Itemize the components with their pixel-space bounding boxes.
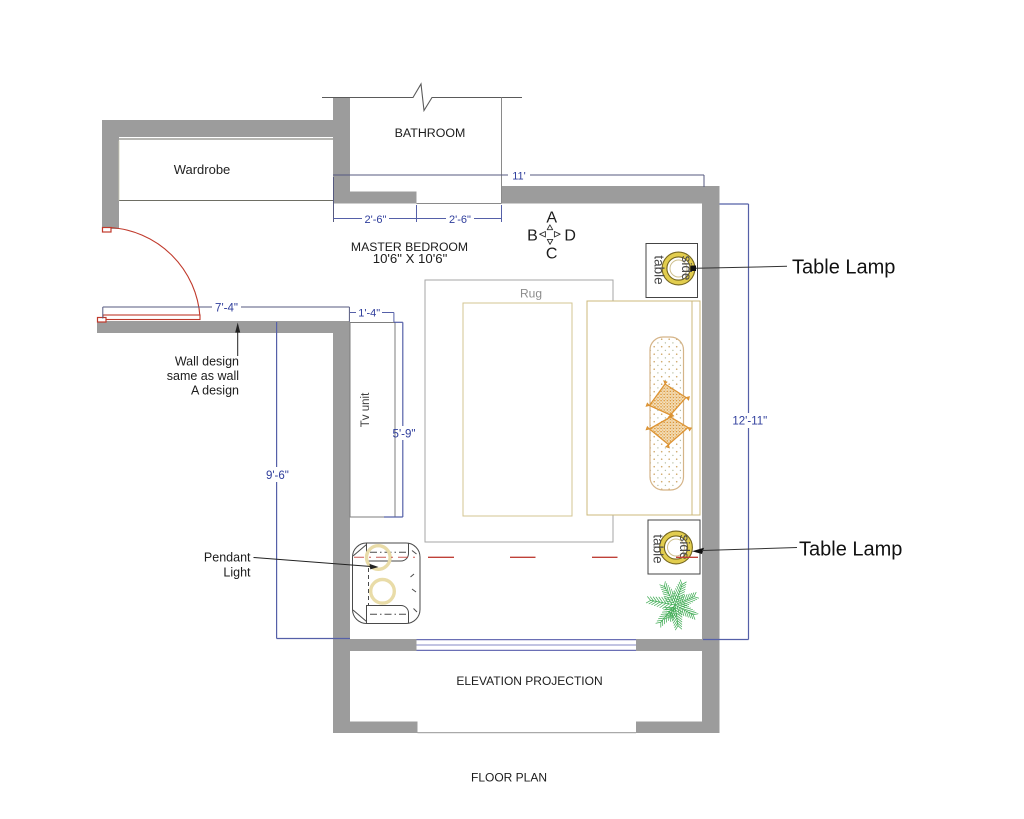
svg-text:Table Lamp: Table Lamp (792, 257, 895, 279)
svg-text:9'-6": 9'-6" (266, 470, 289, 482)
svg-text:12'-11": 12'-11" (732, 416, 767, 428)
svg-text:7'-4": 7'-4" (215, 303, 238, 315)
svg-text:Wardrobe: Wardrobe (174, 162, 231, 177)
svg-text:A design: A design (191, 384, 239, 398)
svg-text:FLOOR PLAN: FLOOR PLAN (471, 771, 547, 785)
svg-text:C: C (546, 246, 558, 263)
svg-text:BATHROOM: BATHROOM (395, 126, 466, 140)
svg-text:table: table (652, 255, 667, 284)
svg-text:Tv unit: Tv unit (360, 392, 372, 427)
svg-text:ELEVATION PROJECTION: ELEVATION PROJECTION (456, 674, 602, 688)
svg-text:A: A (546, 209, 557, 226)
svg-text:table: table (651, 534, 666, 563)
svg-text:B: B (527, 227, 538, 244)
svg-text:Pendant: Pendant (204, 551, 251, 565)
svg-text:2'-6": 2'-6" (365, 214, 387, 226)
svg-text:2'-6": 2'-6" (449, 214, 471, 226)
svg-text:10'6" X 10'6": 10'6" X 10'6" (373, 251, 448, 266)
svg-text:same as wall: same as wall (167, 369, 239, 383)
svg-text:11': 11' (512, 171, 526, 183)
svg-text:D: D (564, 227, 576, 244)
svg-text:Wall design: Wall design (175, 355, 239, 369)
svg-text:Light: Light (223, 565, 251, 579)
svg-text:side: side (677, 535, 692, 560)
svg-text:Rug: Rug (520, 287, 542, 301)
svg-text:Table Lamp: Table Lamp (799, 539, 902, 561)
svg-text:1'-4": 1'-4" (358, 308, 380, 320)
svg-text:5'-9": 5'-9" (393, 429, 416, 441)
